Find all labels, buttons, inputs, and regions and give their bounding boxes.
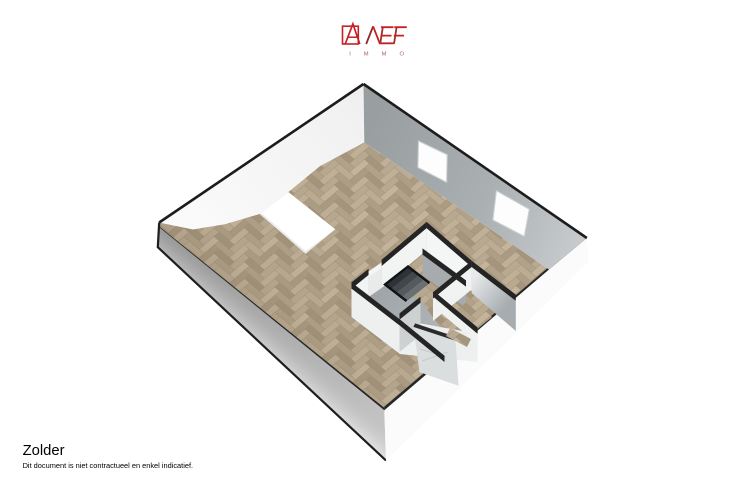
- svg-text:IMMO: IMMO: [349, 52, 417, 58]
- svg-text:Dit document is niet contractu: Dit document is niet contractueel en enk…: [23, 461, 194, 470]
- svg-text:Zolder: Zolder: [23, 443, 65, 459]
